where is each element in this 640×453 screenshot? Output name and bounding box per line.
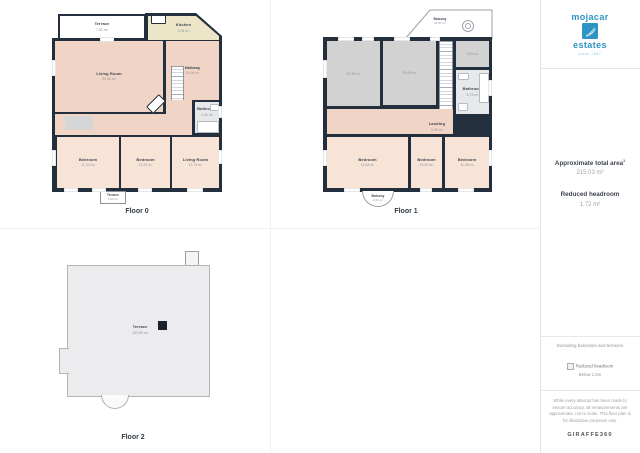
floor0-caption: Floor 0 bbox=[87, 208, 187, 215]
window bbox=[362, 37, 374, 41]
window bbox=[218, 150, 222, 164]
sidebar-divider bbox=[540, 390, 640, 391]
window bbox=[52, 60, 56, 76]
disclaimer-text: While every attempt has been made to ens… bbox=[548, 398, 632, 425]
window bbox=[52, 150, 56, 166]
room-bedroom-l-f1: Bedroom14.64 m² bbox=[327, 137, 408, 188]
window bbox=[218, 106, 222, 118]
total-area-label: Approximate total area1 bbox=[540, 159, 640, 167]
window bbox=[394, 37, 410, 41]
room-gray-mid: 20.69 m² bbox=[383, 41, 436, 105]
floor-1-plan: Balcony14.37 m² 15.39 m² 20.69 m² 4.53 m… bbox=[270, 0, 540, 228]
window bbox=[488, 150, 492, 166]
sidebar-divider bbox=[540, 336, 640, 337]
room-terrace-bottom: Terrace4.20 m² bbox=[100, 191, 126, 204]
room-balcony-bottom: Balcony2.21 m² bbox=[362, 191, 394, 207]
sidebar-divider bbox=[540, 68, 640, 69]
door-gap bbox=[430, 37, 440, 41]
window bbox=[420, 188, 432, 192]
window bbox=[488, 80, 492, 96]
legend-text-1: Reduced headroom bbox=[576, 364, 614, 369]
window bbox=[138, 188, 152, 192]
window bbox=[64, 188, 78, 192]
kitchen-hood-fixture bbox=[151, 15, 166, 24]
room-living: Living Room34.94 m² bbox=[55, 41, 163, 112]
closet bbox=[65, 116, 93, 130]
sink-fixture bbox=[458, 73, 469, 80]
headroom-label: Reduced headroom bbox=[540, 191, 640, 198]
floor2-caption: Floor 2 bbox=[83, 434, 183, 441]
window bbox=[323, 150, 327, 166]
room-living2-f0: Living Room13.73 m² bbox=[172, 137, 219, 188]
floor1-stairs bbox=[439, 41, 453, 114]
window bbox=[323, 60, 327, 78]
floor-0-plan: Terrace7.52 m² Kitchen9.28 m² Living Roo… bbox=[0, 0, 270, 228]
door-gap bbox=[100, 37, 114, 42]
floor-2-plan: Terrace152.80 m² Floor 2 bbox=[0, 228, 270, 453]
room-landing: Landing9.76 m² bbox=[327, 109, 453, 134]
room-bedroom-l-f0: Bedroom11.20 m² bbox=[57, 137, 119, 188]
room-bedroom-m-f1: Bedroom10.52 m² bbox=[411, 137, 442, 188]
floor1-caption: Floor 1 bbox=[356, 208, 456, 215]
window bbox=[338, 37, 354, 41]
headroom-value: 1.72 m² bbox=[540, 202, 640, 208]
room-bedroom-m-f0: Bedroom13.22 m² bbox=[121, 137, 170, 188]
terrace-semicircle bbox=[101, 395, 129, 409]
giraffe360-brand: GIRAFFE360 bbox=[540, 432, 640, 438]
footnote-marker: 1 bbox=[623, 159, 625, 163]
agency-logo: mojacar estates since 1987 bbox=[540, 12, 640, 56]
room-balcony-top: Balcony14.37 m² bbox=[420, 13, 460, 31]
legend-swatch bbox=[567, 363, 574, 370]
terrace-notch bbox=[59, 348, 69, 374]
legend-text-2: Below 1.5m bbox=[540, 372, 640, 377]
headroom-legend: Reduced headroom Below 1.5m bbox=[540, 363, 640, 377]
toilet-fixture bbox=[458, 103, 468, 111]
logo-tagline: since 1987 bbox=[540, 52, 640, 56]
shower-fixture bbox=[197, 121, 219, 133]
excluding-note: Excluding balconies and terraces bbox=[540, 343, 640, 348]
window bbox=[344, 188, 360, 192]
spiral-stair-icon bbox=[462, 20, 474, 32]
total-area-value: 215.03 m² bbox=[540, 170, 640, 176]
logo-word-bottom: estates bbox=[540, 40, 640, 50]
room-gray-left: 15.39 m² bbox=[327, 41, 380, 106]
window bbox=[458, 188, 474, 192]
window bbox=[92, 188, 106, 192]
window bbox=[187, 188, 203, 192]
room-gray-topright: 4.53 m² bbox=[456, 41, 489, 67]
agency-logo-icon bbox=[582, 23, 598, 39]
room-bedroom-r-f1: Bedroom11.28 m² bbox=[445, 137, 489, 188]
logo-word-top: mojacar bbox=[540, 12, 640, 22]
room-terrace-f2: Terrace152.80 m² bbox=[119, 324, 161, 336]
